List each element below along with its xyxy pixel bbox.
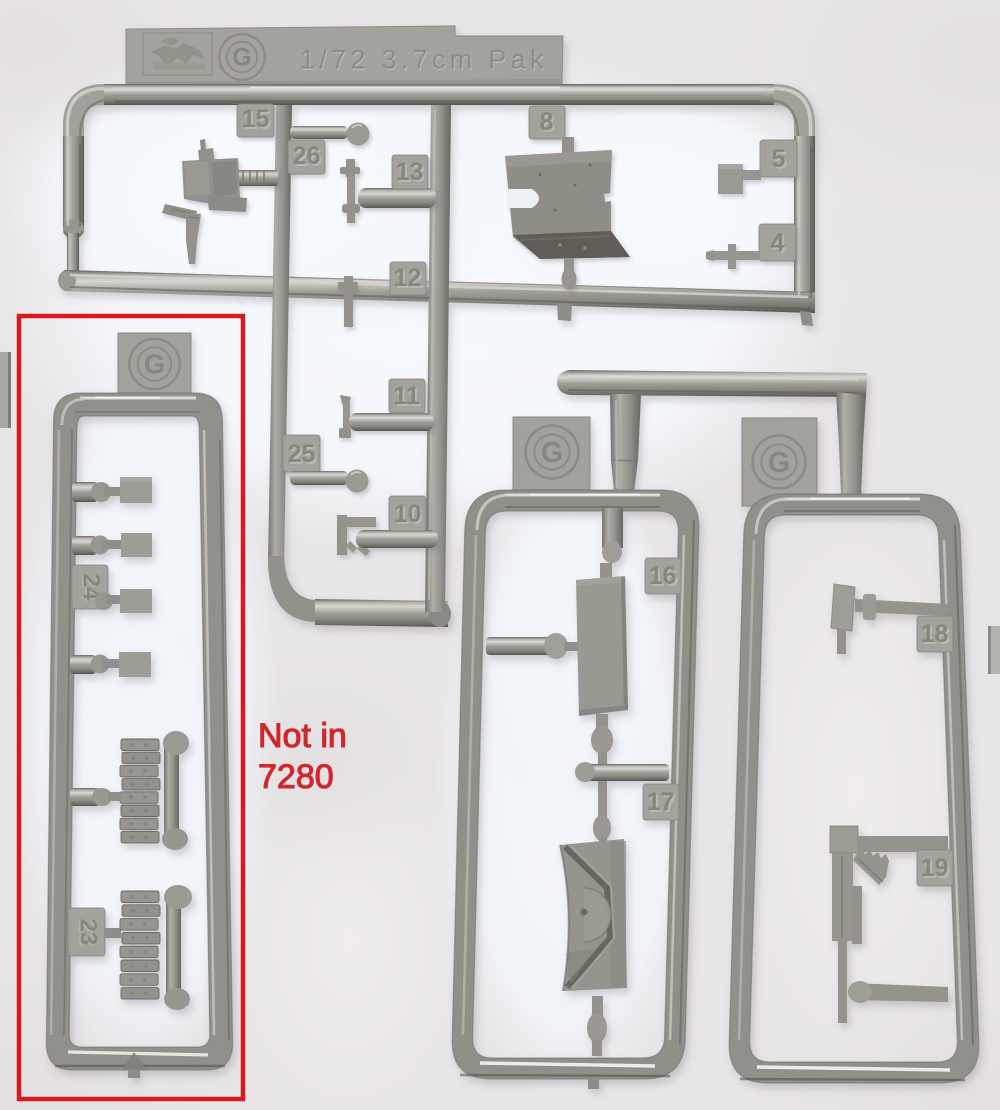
svg-text:23: 23 — [75, 919, 102, 946]
svg-text:4: 4 — [771, 229, 785, 257]
svg-text:17: 17 — [647, 788, 675, 816]
svg-text:11: 11 — [393, 382, 420, 410]
svg-text:7280: 7280 — [258, 758, 334, 796]
svg-text:10: 10 — [394, 500, 422, 528]
svg-text:26: 26 — [293, 142, 321, 170]
svg-text:13: 13 — [396, 158, 424, 186]
svg-text:8: 8 — [540, 108, 554, 136]
svg-text:19: 19 — [921, 854, 949, 882]
svg-text:12: 12 — [394, 264, 422, 292]
svg-text:16: 16 — [649, 562, 677, 590]
svg-text:Not in: Not in — [258, 717, 347, 755]
svg-text:18: 18 — [921, 620, 949, 648]
svg-text:5: 5 — [772, 145, 786, 173]
svg-text:15: 15 — [242, 105, 270, 133]
svg-text:25: 25 — [288, 440, 316, 468]
